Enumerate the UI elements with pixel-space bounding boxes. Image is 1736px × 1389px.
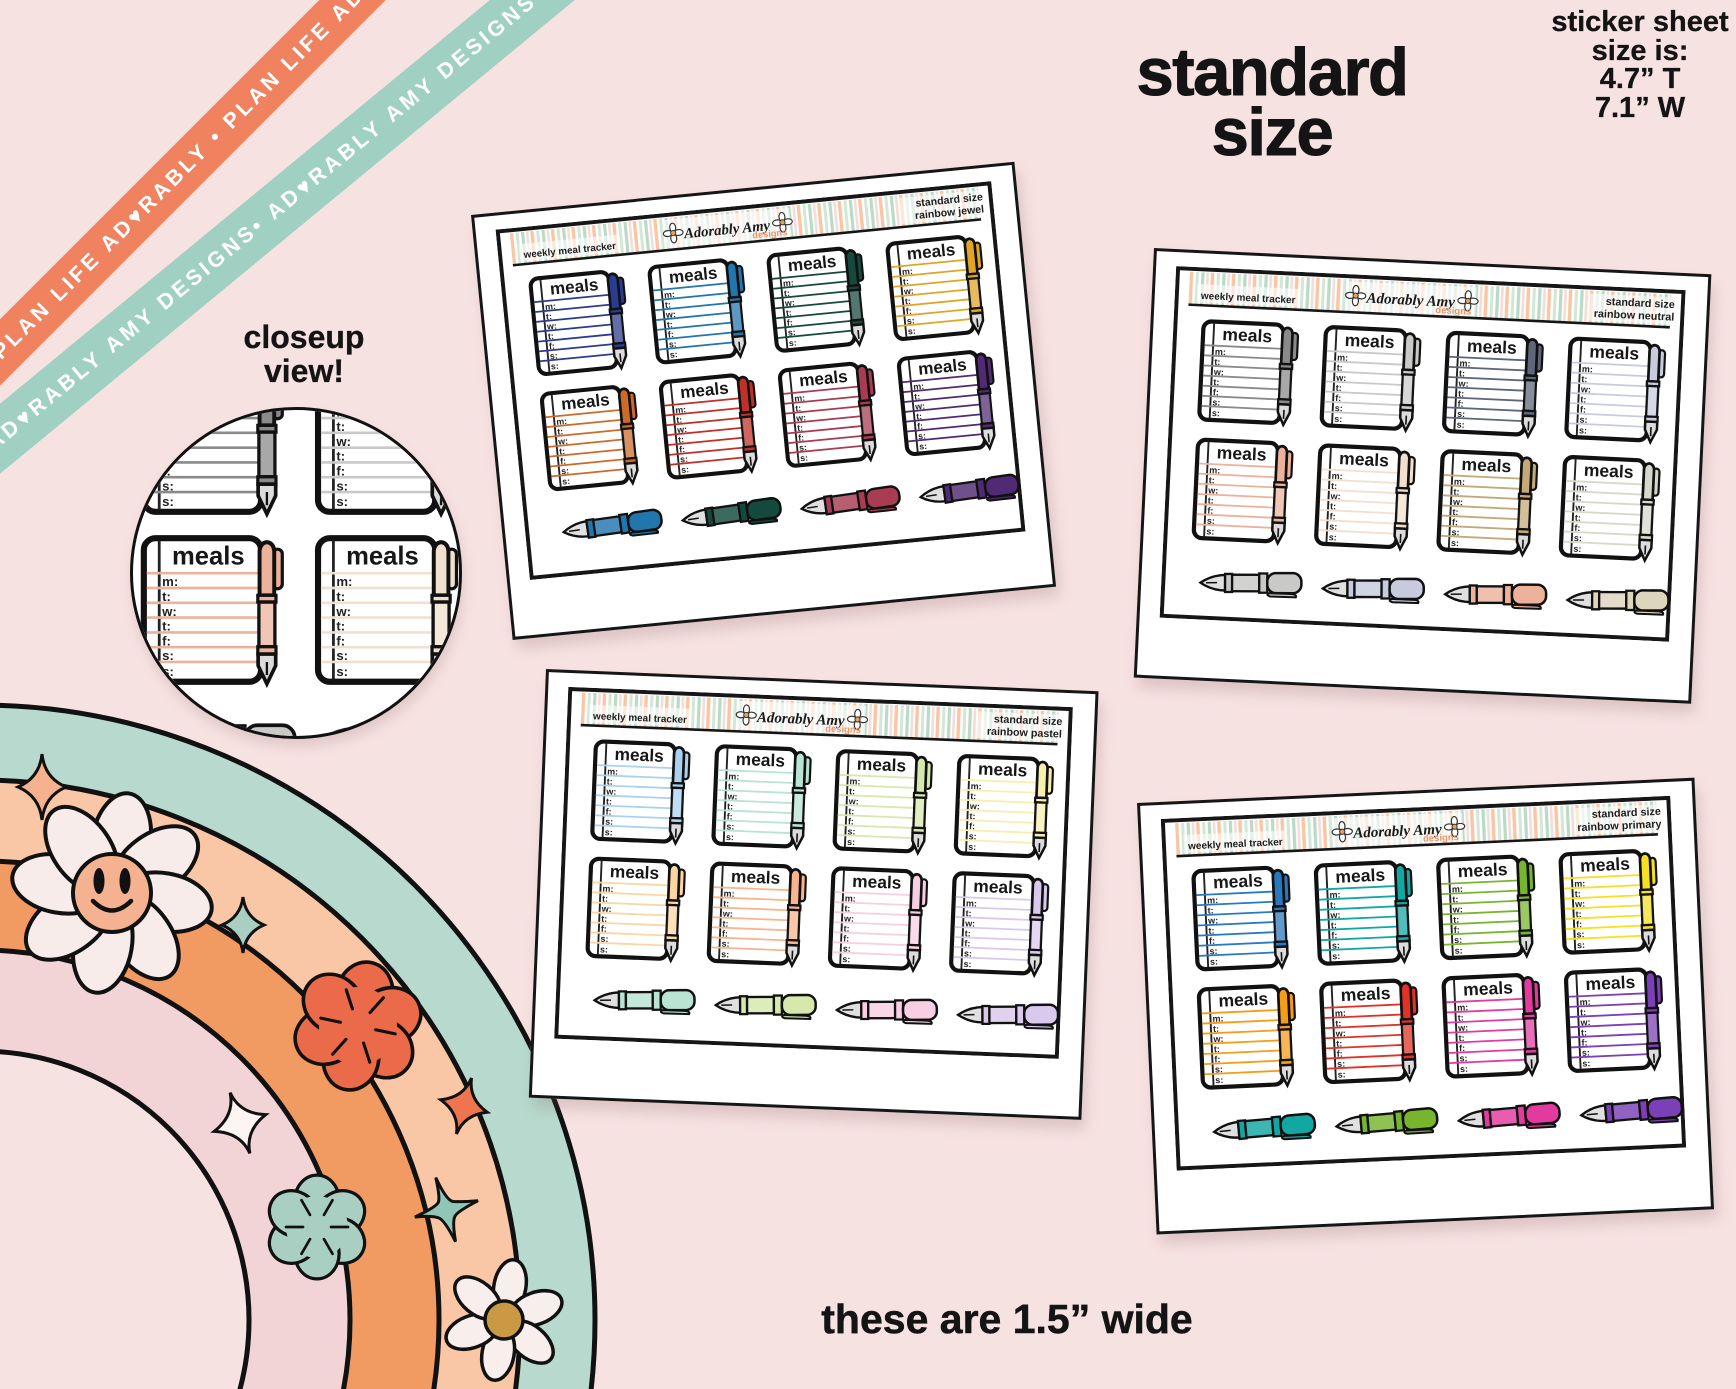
svg-text:designs: designs: [1435, 305, 1471, 318]
svg-text:designs: designs: [825, 724, 861, 736]
svg-text:designs: designs: [1423, 832, 1459, 845]
